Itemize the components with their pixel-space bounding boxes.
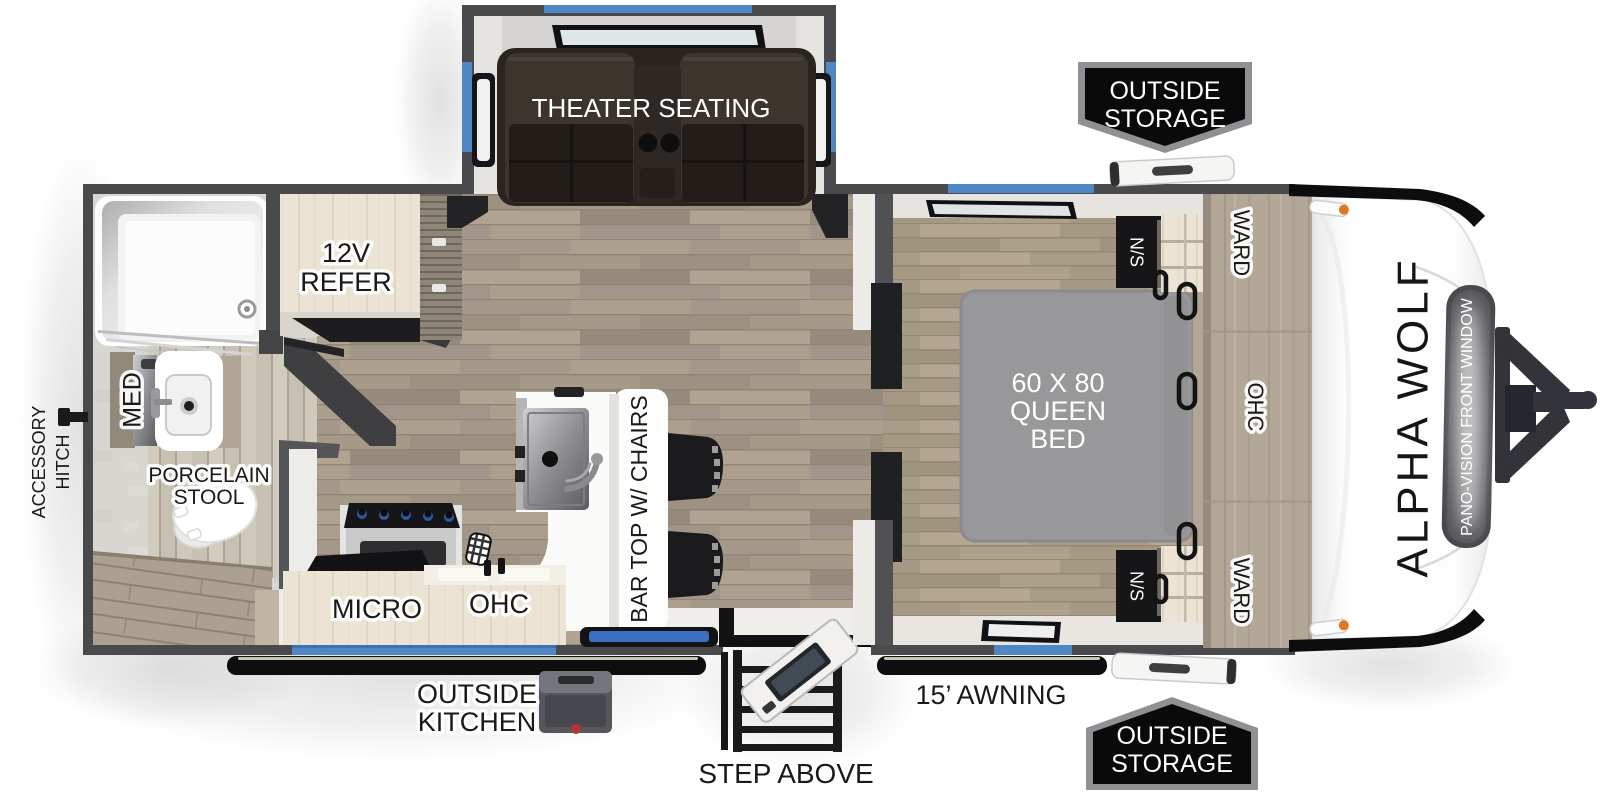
- svg-text:PANO-VISION FRONT WINDOW: PANO-VISION FRONT WINDOW: [1459, 297, 1476, 536]
- svg-text:OHC: OHC: [469, 589, 529, 619]
- svg-text:OUTSIDE: OUTSIDE: [417, 679, 537, 709]
- svg-text:N/S: N/S: [1126, 237, 1146, 267]
- svg-text:REFER: REFER: [300, 267, 392, 297]
- svg-text:PORCELAIN: PORCELAIN: [148, 464, 269, 487]
- svg-text:15’ AWNING: 15’ AWNING: [915, 680, 1066, 710]
- svg-text:QUEEN: QUEEN: [1010, 396, 1106, 426]
- svg-text:ACCESSORY: ACCESSORY: [29, 406, 49, 519]
- svg-text:MED: MED: [119, 372, 147, 428]
- svg-text:60 X 80: 60 X 80: [1011, 368, 1104, 398]
- svg-text:N/S: N/S: [1126, 571, 1146, 601]
- svg-text:STEP ABOVE: STEP ABOVE: [698, 758, 873, 789]
- svg-text:OUTSIDE: OUTSIDE: [1109, 77, 1220, 105]
- svg-text:WARD: WARD: [1229, 210, 1254, 276]
- svg-text:HITCH: HITCH: [53, 435, 73, 490]
- svg-text:MICRO: MICRO: [332, 594, 422, 624]
- svg-text:12V: 12V: [322, 238, 370, 268]
- svg-text:WARD: WARD: [1229, 558, 1254, 624]
- svg-text:STORAGE: STORAGE: [1104, 105, 1226, 133]
- svg-text:BED: BED: [1030, 424, 1086, 454]
- svg-text:ALPHA WOLF: ALPHA WOLF: [1389, 256, 1438, 577]
- svg-text:THEATER SEATING: THEATER SEATING: [532, 93, 771, 123]
- svg-text:BAR TOP W/ CHAIRS: BAR TOP W/ CHAIRS: [626, 395, 652, 623]
- svg-text:STORAGE: STORAGE: [1111, 750, 1233, 778]
- svg-text:OHC: OHC: [1243, 383, 1268, 432]
- svg-text:STOOL: STOOL: [174, 486, 245, 509]
- svg-text:OUTSIDE: OUTSIDE: [1116, 722, 1227, 750]
- svg-text:KITCHEN: KITCHEN: [418, 707, 537, 737]
